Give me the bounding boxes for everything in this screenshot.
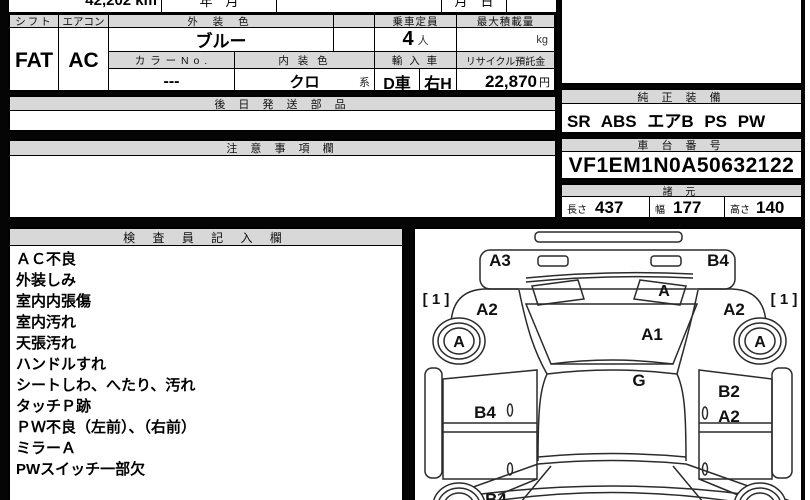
mileage-cell: 42,202 km	[8, 0, 162, 13]
aircon-value: AC	[59, 28, 109, 92]
exterior-color-header: 外 装 色	[109, 15, 334, 28]
aircon-header: エアコン	[59, 15, 109, 28]
door-left-panel	[443, 370, 537, 479]
exterior-color-value: ブルー	[109, 28, 334, 52]
wiper-left	[532, 280, 584, 305]
crease-left	[519, 290, 547, 374]
capacity-value: 4	[402, 28, 413, 51]
inspector-item: ミラーＡ	[16, 438, 402, 459]
label-rear-left: B4	[485, 490, 507, 500]
label-marker-left: [ 1 ]	[423, 291, 450, 308]
headlight-right	[651, 256, 681, 266]
color-no-header: カ ラ ー N o .	[109, 52, 235, 69]
label-wheel-fr: A	[754, 334, 766, 351]
notes-title: 注 意 事 項 欄	[10, 141, 555, 156]
shift-value: FAT	[10, 28, 59, 92]
inspector-title: 検 査 員 記 入 欄	[10, 229, 402, 246]
damage-diagram-panel: A3 B4 [ 1 ] [ 1 ] A2 A2 A A1 G B4 B2 A2 …	[413, 227, 803, 500]
inspector-item: 天張汚れ	[16, 333, 402, 354]
label-door-left: B4	[474, 403, 496, 422]
chassis-title: 車 台 番 号	[562, 139, 801, 152]
recycle-value: 22,870	[485, 72, 537, 92]
label-marker-right: [ 1 ]	[771, 291, 798, 308]
vehicle-table: シフト エアコン 外 装 色 乗車定員 最大積載量 FAT AC ブルー 4 人…	[8, 13, 557, 92]
notes-section: 注 意 事 項 欄	[8, 139, 557, 219]
door-handle-right-upper	[703, 407, 708, 419]
shipping-title: 後 日 発 送 部 品	[10, 97, 555, 111]
roof-band-1	[538, 454, 686, 458]
auction-sheet: 42,202 km 年 月 月 日 シフト エアコン 外 装 色 乗車定員 最大…	[0, 0, 810, 500]
recycle-header: リサイクル預託金	[457, 52, 555, 69]
cowl-line-2	[526, 277, 693, 282]
inspector-item-list: ＡＣ不良 外装しみ 室内内張傷 室内汚れ 天張汚れ ハンドルすれ シートしわ、へ…	[10, 246, 402, 480]
inspector-item: 外装しみ	[16, 270, 402, 291]
inspector-item: ＡＣ不良	[16, 249, 402, 270]
spec-width-value: 177	[673, 198, 701, 218]
spec-width: 幅 177	[650, 197, 725, 219]
label-hood: A1	[641, 325, 663, 344]
label-wheel-fl: A	[453, 334, 465, 351]
label-door-right-upper: B2	[718, 382, 740, 401]
spec-width-label: 幅	[655, 201, 665, 216]
payload-unit: kg	[536, 34, 548, 46]
date2-cell: 月 日	[442, 0, 507, 13]
chassis-number: VF1EM1N0A50632122	[562, 152, 801, 180]
mileage-value: 42,202 km	[9, 0, 161, 9]
payload-header: 最大積載量	[457, 15, 555, 28]
capacity-header: 乗車定員	[375, 15, 457, 28]
hood-panel	[526, 304, 697, 364]
headlight-left	[538, 256, 568, 266]
equipment-title: 純 正 装 備	[562, 90, 801, 104]
right-top-empty-box	[560, 0, 803, 85]
rocker-right	[772, 368, 792, 478]
date2-label: 月 日	[442, 0, 506, 10]
label-fender-right: A2	[723, 300, 745, 319]
wheel-rear-right	[734, 483, 786, 500]
import-header: 輸 入 車	[375, 52, 457, 69]
equipment-value: SR ABS エアB PS PW	[562, 104, 801, 134]
car-top-view-diagram: A3 B4 [ 1 ] [ 1 ] A2 A2 A A1 G B4 B2 A2 …	[415, 229, 803, 500]
interior-color-value: クロ	[289, 71, 319, 92]
shift-header: シフト	[10, 15, 59, 28]
spec-length: 長さ 437	[562, 197, 650, 219]
recycle-cell: 22,870 円	[457, 69, 555, 92]
exterior-color-header-spacer	[334, 15, 375, 28]
inspector-item: ＰＷ不良（左前）、（右前）	[16, 417, 402, 438]
recycle-unit: 円	[539, 74, 550, 90]
right-page-sliver	[805, 0, 810, 500]
inspector-item: PWスイッチ一部欠	[16, 459, 402, 480]
door-handle-left-upper	[508, 404, 513, 416]
label-door-right-lower: A2	[718, 407, 740, 426]
inspector-item: 室内内張傷	[16, 291, 402, 312]
shipping-empty-area	[10, 111, 555, 132]
rocker-left	[425, 368, 442, 478]
spec-length-label: 長さ	[567, 201, 587, 216]
shipping-section: 後 日 発 送 部 品	[8, 95, 557, 132]
date1-cell: 年 月	[162, 0, 277, 13]
label-front-left: A3	[489, 251, 511, 270]
inspector-item: 室内汚れ	[16, 312, 402, 333]
inspector-item: シートしわ、へたり、汚れ	[16, 375, 402, 396]
door-handle-right-lower	[703, 463, 708, 475]
top-empty-cell-2	[507, 0, 557, 13]
interior-color-header: 内 装 色	[235, 52, 375, 69]
chassis-section: 車 台 番 号 VF1EM1N0A50632122	[560, 137, 803, 180]
payload-cell: kg	[457, 28, 555, 52]
inspector-item: タッチＰ跡	[16, 396, 402, 417]
specs-row: 長さ 437 幅 177 高さ 140	[562, 197, 801, 219]
import-value-1: D車	[375, 69, 420, 92]
label-cowl-right: A	[658, 283, 670, 300]
front-bumper-strip	[535, 232, 682, 242]
specs-section: 諸 元 長さ 437 幅 177 高さ 140	[560, 183, 803, 219]
door-left-seams	[443, 423, 537, 432]
capacity-unit: 人	[418, 32, 429, 48]
spec-height-value: 140	[756, 198, 784, 218]
color-no-value: ---	[109, 69, 235, 92]
label-glass: G	[632, 371, 645, 390]
inspector-item: ハンドルすれ	[16, 354, 402, 375]
front-nose-panel	[480, 250, 735, 289]
label-front-right: B4	[707, 251, 729, 270]
interior-color-suffix: 系	[359, 74, 370, 90]
label-fender-left: A2	[476, 300, 498, 319]
interior-color-cell: クロ 系	[235, 69, 375, 92]
exterior-color-extra-cell	[334, 28, 375, 52]
import-value-2: 右H	[420, 69, 457, 92]
capacity-cell: 4 人	[375, 28, 457, 52]
spec-length-value: 437	[595, 198, 623, 218]
spec-height-label: 高さ	[730, 201, 750, 216]
notes-empty-area	[10, 156, 555, 219]
glass-top-curve	[547, 370, 677, 374]
top-empty-cell-1	[277, 0, 442, 13]
roof-band-2	[538, 461, 686, 465]
specs-title: 諸 元	[562, 185, 801, 197]
body-side-right	[677, 374, 686, 461]
spec-height: 高さ 140	[725, 197, 801, 219]
inspector-section: 検 査 員 記 入 欄 ＡＣ不良 外装しみ 室内内張傷 室内汚れ 天張汚れ ハン…	[8, 227, 404, 500]
date1-label: 年 月	[162, 0, 276, 10]
equipment-section: 純 正 装 備 SR ABS エアB PS PW	[560, 88, 803, 134]
body-side-left	[538, 374, 547, 461]
